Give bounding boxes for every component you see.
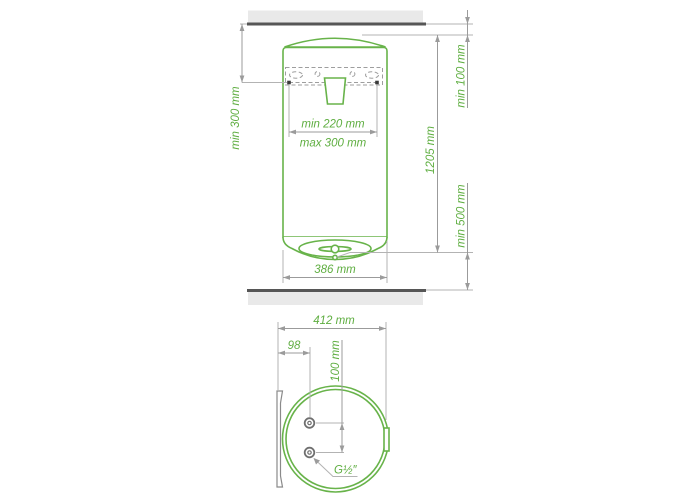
dim-label-min-300: min 300 mm — [230, 86, 242, 150]
dim-anchor-to-ceiling: min 300 mm — [230, 24, 287, 150]
dim-label-thread: G½″ — [334, 465, 358, 477]
floor-fill — [248, 292, 423, 305]
dim-ceiling-clearance: min 100 mm — [456, 10, 470, 108]
dim-label-min-500: min 500 mm — [456, 184, 468, 248]
dim-label-max-300: max 300 mm — [300, 138, 367, 150]
dim-label-386: 386 mm — [314, 264, 356, 276]
ceiling-fill — [248, 11, 423, 24]
hanging-hook-plate — [325, 78, 346, 104]
drain-dot — [333, 255, 337, 259]
dim-label-412: 412 mm — [313, 315, 355, 327]
ceiling-surface — [240, 11, 473, 25]
dim-label-1205: 1205 mm — [425, 126, 437, 174]
anchor-point-left — [287, 81, 291, 85]
floor-surface — [247, 290, 473, 305]
heater-dome-top — [285, 38, 386, 47]
front-view: min 300 mm min 220 mm max 300 mm 386 mm — [230, 10, 473, 305]
dim-label-min-220: min 220 mm — [301, 119, 365, 131]
bottom-view: 412 mm 98 100 mm G½″ — [277, 315, 389, 492]
dim-floor-clearance: min 500 mm — [456, 183, 470, 290]
wall-plate — [277, 391, 283, 487]
knob-center — [331, 245, 339, 253]
anchor-point-right — [375, 81, 379, 85]
dim-label-98: 98 — [288, 340, 301, 352]
cover-seam-bump — [384, 428, 389, 451]
dim-label-100: 100 mm — [330, 340, 342, 382]
dim-label-min-100: min 100 mm — [456, 44, 468, 108]
dimension-drawing: min 300 mm min 220 mm max 300 mm 386 mm — [0, 0, 700, 500]
technical-drawing-canvas: min 300 mm min 220 mm max 300 mm 386 mm — [0, 0, 700, 500]
